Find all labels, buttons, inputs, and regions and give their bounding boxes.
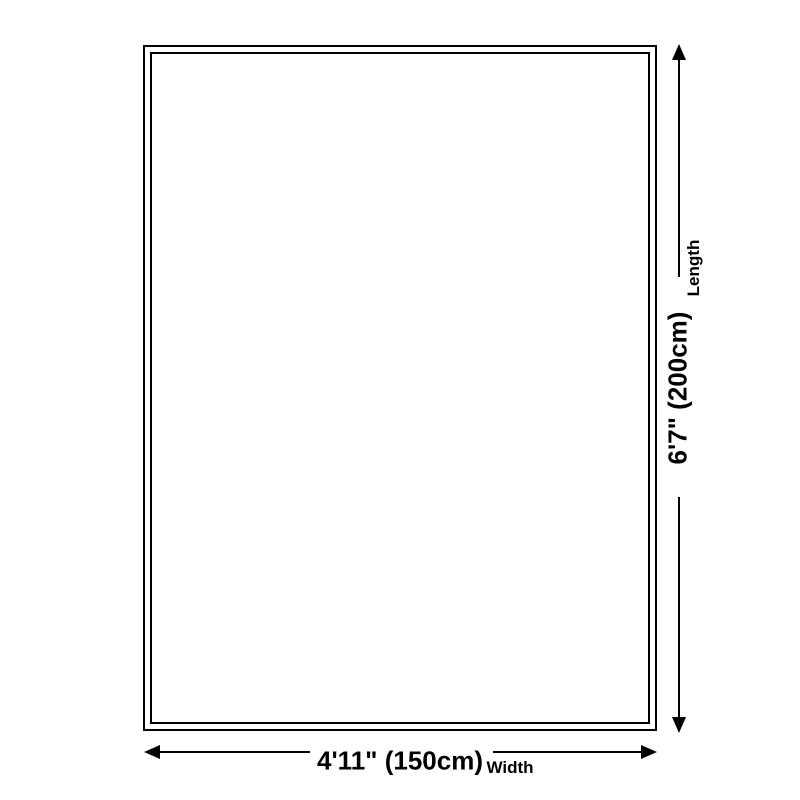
arrow-right-icon	[641, 745, 657, 759]
length-dimension-value: 6'7" (200cm)	[663, 312, 694, 465]
length-dimension-label: Length	[684, 240, 704, 297]
width-dimension-value: 4'11" (150cm)	[317, 746, 483, 777]
product-outline-inner-border	[150, 52, 650, 724]
arrow-down-icon	[672, 717, 686, 733]
length-dimension-line-top	[678, 59, 680, 277]
width-dimension-line-right	[493, 751, 642, 753]
width-dimension-label: Width	[486, 758, 533, 778]
arrow-left-icon	[144, 745, 160, 759]
arrow-up-icon	[672, 44, 686, 60]
product-size-diagram: Length 6'7" (200cm) 4'11" (150cm) Width	[0, 0, 800, 800]
length-dimension-line-bottom	[678, 497, 680, 718]
width-dimension-line-left	[159, 751, 310, 753]
